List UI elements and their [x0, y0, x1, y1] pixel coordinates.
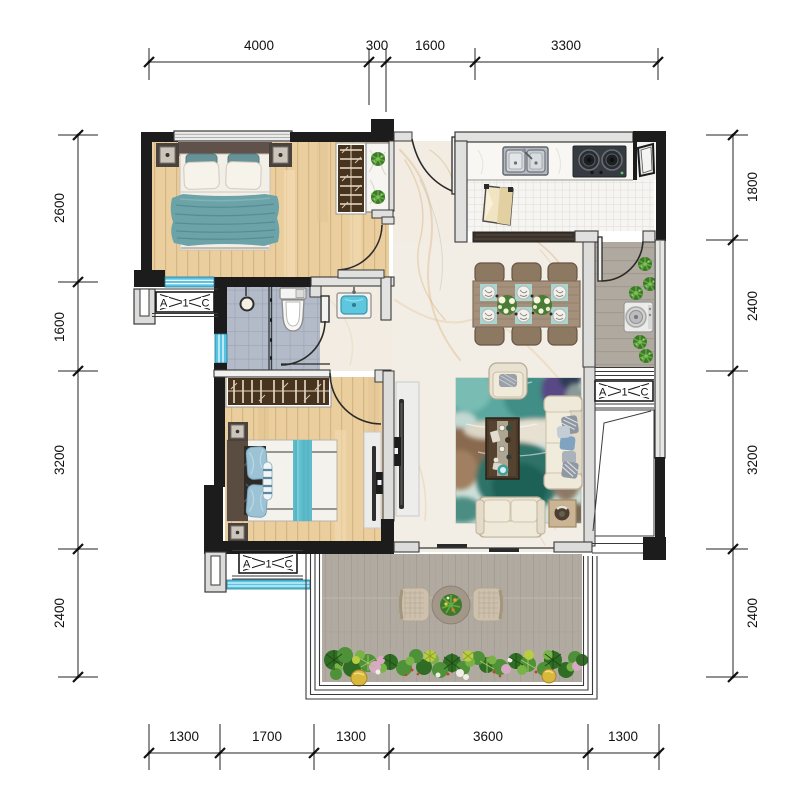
svg-text:3200: 3200: [745, 445, 760, 475]
svg-text:3600: 3600: [473, 729, 503, 744]
svg-text:1300: 1300: [608, 729, 638, 744]
svg-text:1600: 1600: [52, 312, 67, 342]
svg-text:2600: 2600: [52, 193, 67, 223]
svg-text:4000: 4000: [244, 38, 274, 53]
svg-text:1300: 1300: [169, 729, 199, 744]
svg-text:1600: 1600: [415, 38, 445, 53]
svg-text:2400: 2400: [745, 291, 760, 321]
svg-text:1700: 1700: [252, 729, 282, 744]
svg-text:2400: 2400: [745, 598, 760, 628]
svg-text:3200: 3200: [52, 445, 67, 475]
svg-text:1300: 1300: [336, 729, 366, 744]
svg-text:300: 300: [366, 38, 389, 53]
svg-text:2400: 2400: [52, 598, 67, 628]
svg-text:1800: 1800: [745, 172, 760, 202]
svg-text:3300: 3300: [551, 38, 581, 53]
